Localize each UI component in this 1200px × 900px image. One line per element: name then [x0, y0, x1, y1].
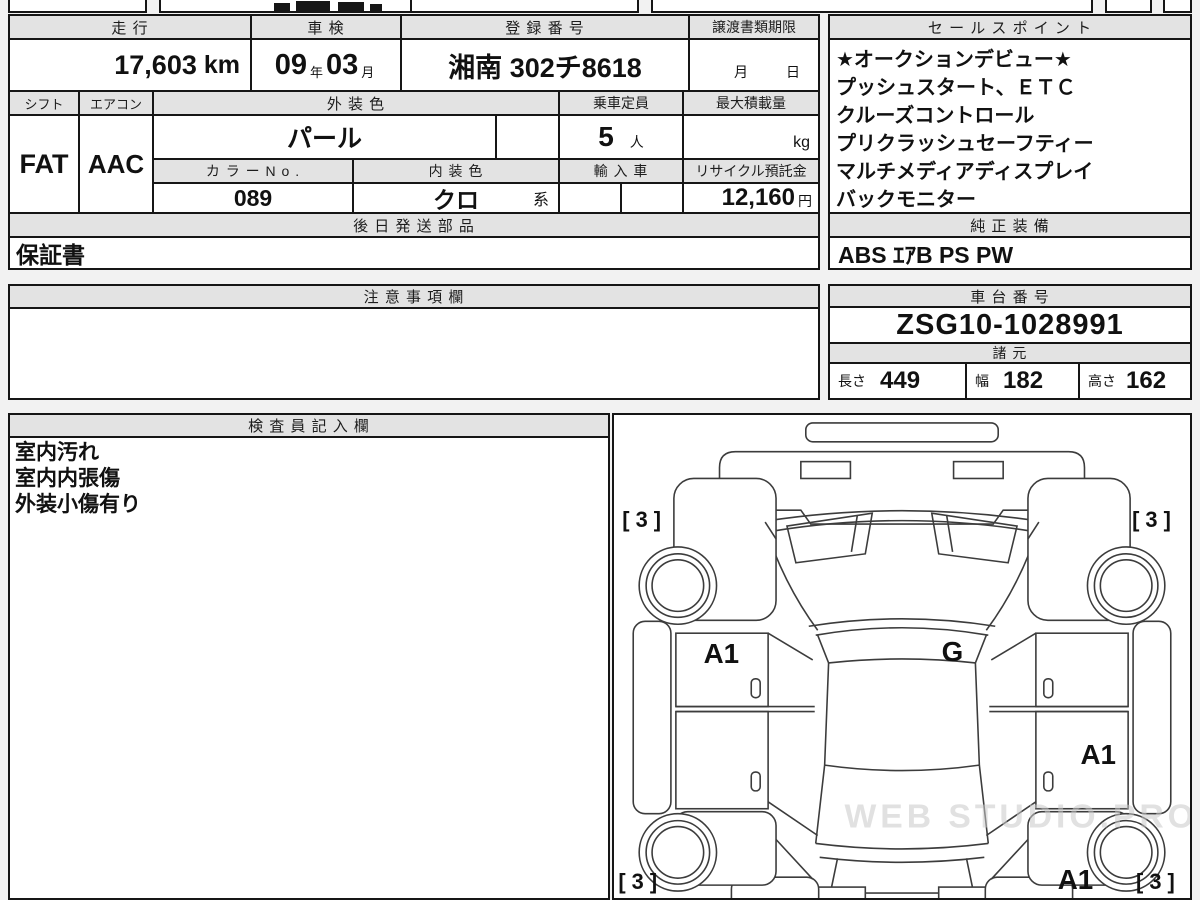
- max-load-value-cell: kg: [682, 114, 820, 160]
- interior-color-value: クロ: [433, 181, 479, 215]
- later-shipping-header: 後 日 発 送 部 品: [8, 212, 820, 238]
- transfer-deadline-header: 譲渡書類期限: [688, 14, 820, 40]
- unfold-connectors: [765, 522, 1039, 835]
- a-pillar-right: [975, 635, 986, 663]
- transfer-deadline-value-cell: 月 日: [688, 38, 820, 92]
- recycle-header: リサイクル預託金: [682, 158, 820, 184]
- later-shipping-header-label: 後 日 発 送 部 品: [353, 215, 475, 236]
- sales-point-item: プッシュスタート、ＥＴＣ: [836, 74, 1076, 102]
- aircon-value: AAC: [88, 149, 144, 180]
- capacity-header-label: 乗車定員: [593, 93, 649, 113]
- top-cut-cell: [8, 0, 147, 13]
- recycle-value-cell: 12,160円: [682, 182, 820, 214]
- sales-points-header: セ ー ル ス ポ イ ン ト: [828, 14, 1192, 40]
- aircon-header: エアコン: [78, 90, 154, 116]
- exterior-color-value: パール: [287, 119, 362, 155]
- spec-height-label: 高さ: [1088, 371, 1116, 391]
- spec-width-label: 幅: [975, 371, 989, 391]
- sales-points-body: ★オークションデビュー★ プッシュスタート、ＥＴＣ クルーズコントロール プリク…: [828, 38, 1192, 214]
- interior-color-suffix: 系: [533, 186, 549, 210]
- genuine-equipment-header: 純 正 装 備: [828, 212, 1192, 238]
- inspector-line: 外装小傷有り: [15, 492, 141, 518]
- spec-length-label: 長さ: [838, 371, 866, 391]
- inspection-header-label: 車 検: [307, 17, 344, 38]
- import-car-header: 輸 入 車: [558, 158, 684, 184]
- mileage-header: 走 行: [8, 14, 252, 40]
- max-load-header: 最大積載量: [682, 90, 820, 116]
- recycle-value: 12,160: [722, 184, 795, 212]
- capacity-unit: 人: [630, 132, 644, 152]
- registration-header: 登 録 番 号: [400, 14, 690, 40]
- inspection-header: 車 検: [250, 14, 402, 40]
- later-shipping-value-cell: 保証書: [8, 236, 820, 270]
- wheel-front-right: [1087, 547, 1164, 624]
- chassis-header-label: 車 台 番 号: [970, 286, 1050, 307]
- interior-color-value-cell: クロ 系: [352, 182, 560, 214]
- genuine-equipment-value: ABS ｴｱB PS PW: [838, 236, 1013, 270]
- mileage-header-label: 走 行: [111, 17, 148, 38]
- chassis-header: 車 台 番 号: [828, 284, 1192, 308]
- cowl-arc-inner: [816, 628, 989, 635]
- exterior-color-value-cell: パール: [152, 114, 497, 160]
- notes-header: 注 意 事 項 欄: [8, 284, 820, 309]
- inspector-header-label: 検 査 員 記 入 欄: [248, 415, 370, 436]
- color-no-value-cell: 089: [152, 182, 354, 214]
- damage-code-rear-right-quarter: A1: [1058, 864, 1094, 895]
- cut-glyph-fragment: [296, 1, 330, 12]
- rear-bumper-inset-left: [814, 887, 866, 898]
- top-cut-cell: [1163, 0, 1192, 13]
- import-car-header-label: 輸 入 車: [594, 161, 649, 181]
- spec-width-cell: 幅182: [965, 362, 1080, 400]
- inspection-month: 03: [326, 49, 358, 82]
- rocker-strip-left: [633, 621, 671, 813]
- capacity-value: 5: [598, 121, 614, 153]
- mileage-value-cell: 17,603km: [8, 38, 252, 92]
- inspector-header: 検 査 員 記 入 欄: [8, 413, 610, 438]
- recycle-header-label: リサイクル預託金: [695, 161, 806, 181]
- chassis-value-cell: ZSG10-1028991: [828, 306, 1192, 344]
- spec-length-value: 449: [880, 367, 920, 395]
- capacity-value-cell: 5人: [558, 114, 684, 160]
- transfer-month-unit: 月: [734, 62, 748, 82]
- top-cut-cell: [410, 0, 639, 13]
- genuine-equipment-value-cell: ABS ｴｱB PS PW: [828, 236, 1192, 270]
- chassis-value: ZSG10-1028991: [896, 309, 1123, 342]
- specs-header-label: 諸 元: [993, 343, 1028, 363]
- cut-glyph-fragment: [370, 4, 382, 12]
- import-car-empty-cell-left: [558, 182, 622, 214]
- registration-value: 湘南 302チ8618: [448, 46, 642, 85]
- cowl-arc: [809, 619, 995, 626]
- aircon-value-cell: AAC: [78, 114, 154, 214]
- color-no-value: 089: [234, 185, 272, 212]
- registration-value-cell: 湘南 302チ8618: [400, 38, 690, 92]
- inspector-line: 室内内張傷: [15, 466, 120, 492]
- mileage-value: 17,603: [114, 50, 197, 81]
- rear-glass-bottom: [816, 843, 989, 848]
- inspection-value-cell: 09年03月: [250, 38, 402, 92]
- capacity-header: 乗車定員: [558, 90, 684, 116]
- rear-bumper-inset-right: [939, 887, 991, 898]
- aircon-header-label: エアコン: [90, 94, 142, 113]
- auction-sheet: 走 行 車 検 登 録 番 号 譲渡書類期限 17,603km 09年03月 湘…: [0, 0, 1200, 900]
- car-diagram-box: [ 3 ] [ 3 ] [ 3 ] [ 3 ] A1 G A1 A1 WEB S…: [612, 413, 1192, 900]
- mileage-unit: km: [204, 51, 240, 80]
- door-divider-left: [676, 707, 815, 712]
- max-load-unit: kg: [793, 134, 810, 152]
- genuine-equipment-header-label: 純 正 装 備: [970, 215, 1050, 236]
- spec-length-cell: 長さ449: [828, 362, 967, 400]
- corner-code-rear-left: [ 3 ]: [618, 869, 657, 894]
- corner-code-front-left: [ 3 ]: [622, 507, 661, 532]
- rear-door-left: [676, 712, 768, 809]
- corner-code-rear-right: [ 3 ]: [1136, 869, 1175, 894]
- exterior-color-header-label: 外 装 色: [327, 93, 385, 114]
- inspection-year: 09: [275, 49, 307, 82]
- top-cut-cell: [651, 0, 1093, 13]
- sales-point-item: マルチメディアディスプレイ: [836, 158, 1093, 186]
- color-no-header-label: カ ラ ー N o .: [206, 161, 300, 181]
- spec-height-cell: 高さ162: [1078, 362, 1192, 400]
- inspector-body: 室内汚れ 室内内張傷 外装小傷有り: [8, 436, 610, 900]
- max-load-header-label: 最大積載量: [716, 93, 786, 113]
- quarter-to-bumper-lines: [776, 839, 1028, 879]
- cut-glyph-fragment: [274, 3, 290, 12]
- interior-color-header-label: 内 装 色: [429, 161, 484, 181]
- door-divider-right: [989, 707, 1128, 712]
- sales-point-item: バックモニター: [836, 186, 976, 214]
- cut-glyph-fragment: [338, 2, 364, 12]
- sales-points-header-label: セ ー ル ス ポ イ ン ト: [928, 17, 1092, 38]
- recycle-unit: 円: [798, 191, 812, 211]
- roof-rear-edge: [825, 765, 980, 770]
- car-diagram: [ 3 ] [ 3 ] [ 3 ] [ 3 ] A1 G A1 A1 WEB S…: [614, 415, 1190, 898]
- exterior-color-header: 外 装 色: [152, 90, 560, 116]
- front-bumper-strip: [806, 423, 998, 442]
- sales-point-item: ★オークションデビュー★: [836, 46, 1072, 74]
- spec-height-value: 162: [1126, 367, 1166, 395]
- inspection-month-unit: 月: [361, 62, 374, 81]
- later-shipping-value: 保証書: [16, 236, 85, 270]
- shift-header-label: シフト: [24, 94, 63, 113]
- damage-code-front-left-door: A1: [704, 638, 740, 669]
- notes-body: [8, 307, 820, 400]
- shift-value: FAT: [20, 149, 69, 180]
- corner-code-front-right: [ 3 ]: [1132, 507, 1171, 532]
- shift-value-cell: FAT: [8, 114, 80, 214]
- import-car-empty-cell-right: [620, 182, 684, 214]
- wheel-front-left: [639, 547, 716, 624]
- sales-point-item: プリクラッシュセーフティー: [836, 130, 1094, 158]
- damage-code-center: G: [942, 636, 964, 667]
- front-door-right: [1036, 633, 1128, 706]
- notes-header-label: 注 意 事 項 欄: [364, 286, 465, 307]
- transfer-deadline-header-label: 譲渡書類期限: [712, 17, 796, 37]
- sales-point-item: クルーズコントロール: [836, 102, 1034, 130]
- a-pillar-left: [818, 635, 829, 663]
- watermark: WEB STUDIO.PRO: [844, 798, 1190, 836]
- damage-code-rear-right-door: A1: [1081, 739, 1117, 770]
- shift-header: シフト: [8, 90, 80, 116]
- registration-header-label: 登 録 番 号: [505, 17, 585, 38]
- exterior-color-empty-cell: [495, 114, 560, 160]
- color-no-header: カ ラ ー N o .: [152, 158, 354, 184]
- specs-header: 諸 元: [828, 342, 1192, 364]
- transfer-day-unit: 日: [786, 62, 800, 82]
- top-cut-cell: [1105, 0, 1152, 13]
- inspector-line: 室内汚れ: [15, 440, 99, 466]
- roof-sides: [825, 663, 980, 765]
- rear-bumper-center: [865, 893, 938, 898]
- trunk-arc: [820, 857, 985, 862]
- spec-width-value: 182: [1003, 367, 1043, 395]
- inspection-year-unit: 年: [310, 62, 323, 81]
- rocker-strip-right: [1133, 621, 1171, 813]
